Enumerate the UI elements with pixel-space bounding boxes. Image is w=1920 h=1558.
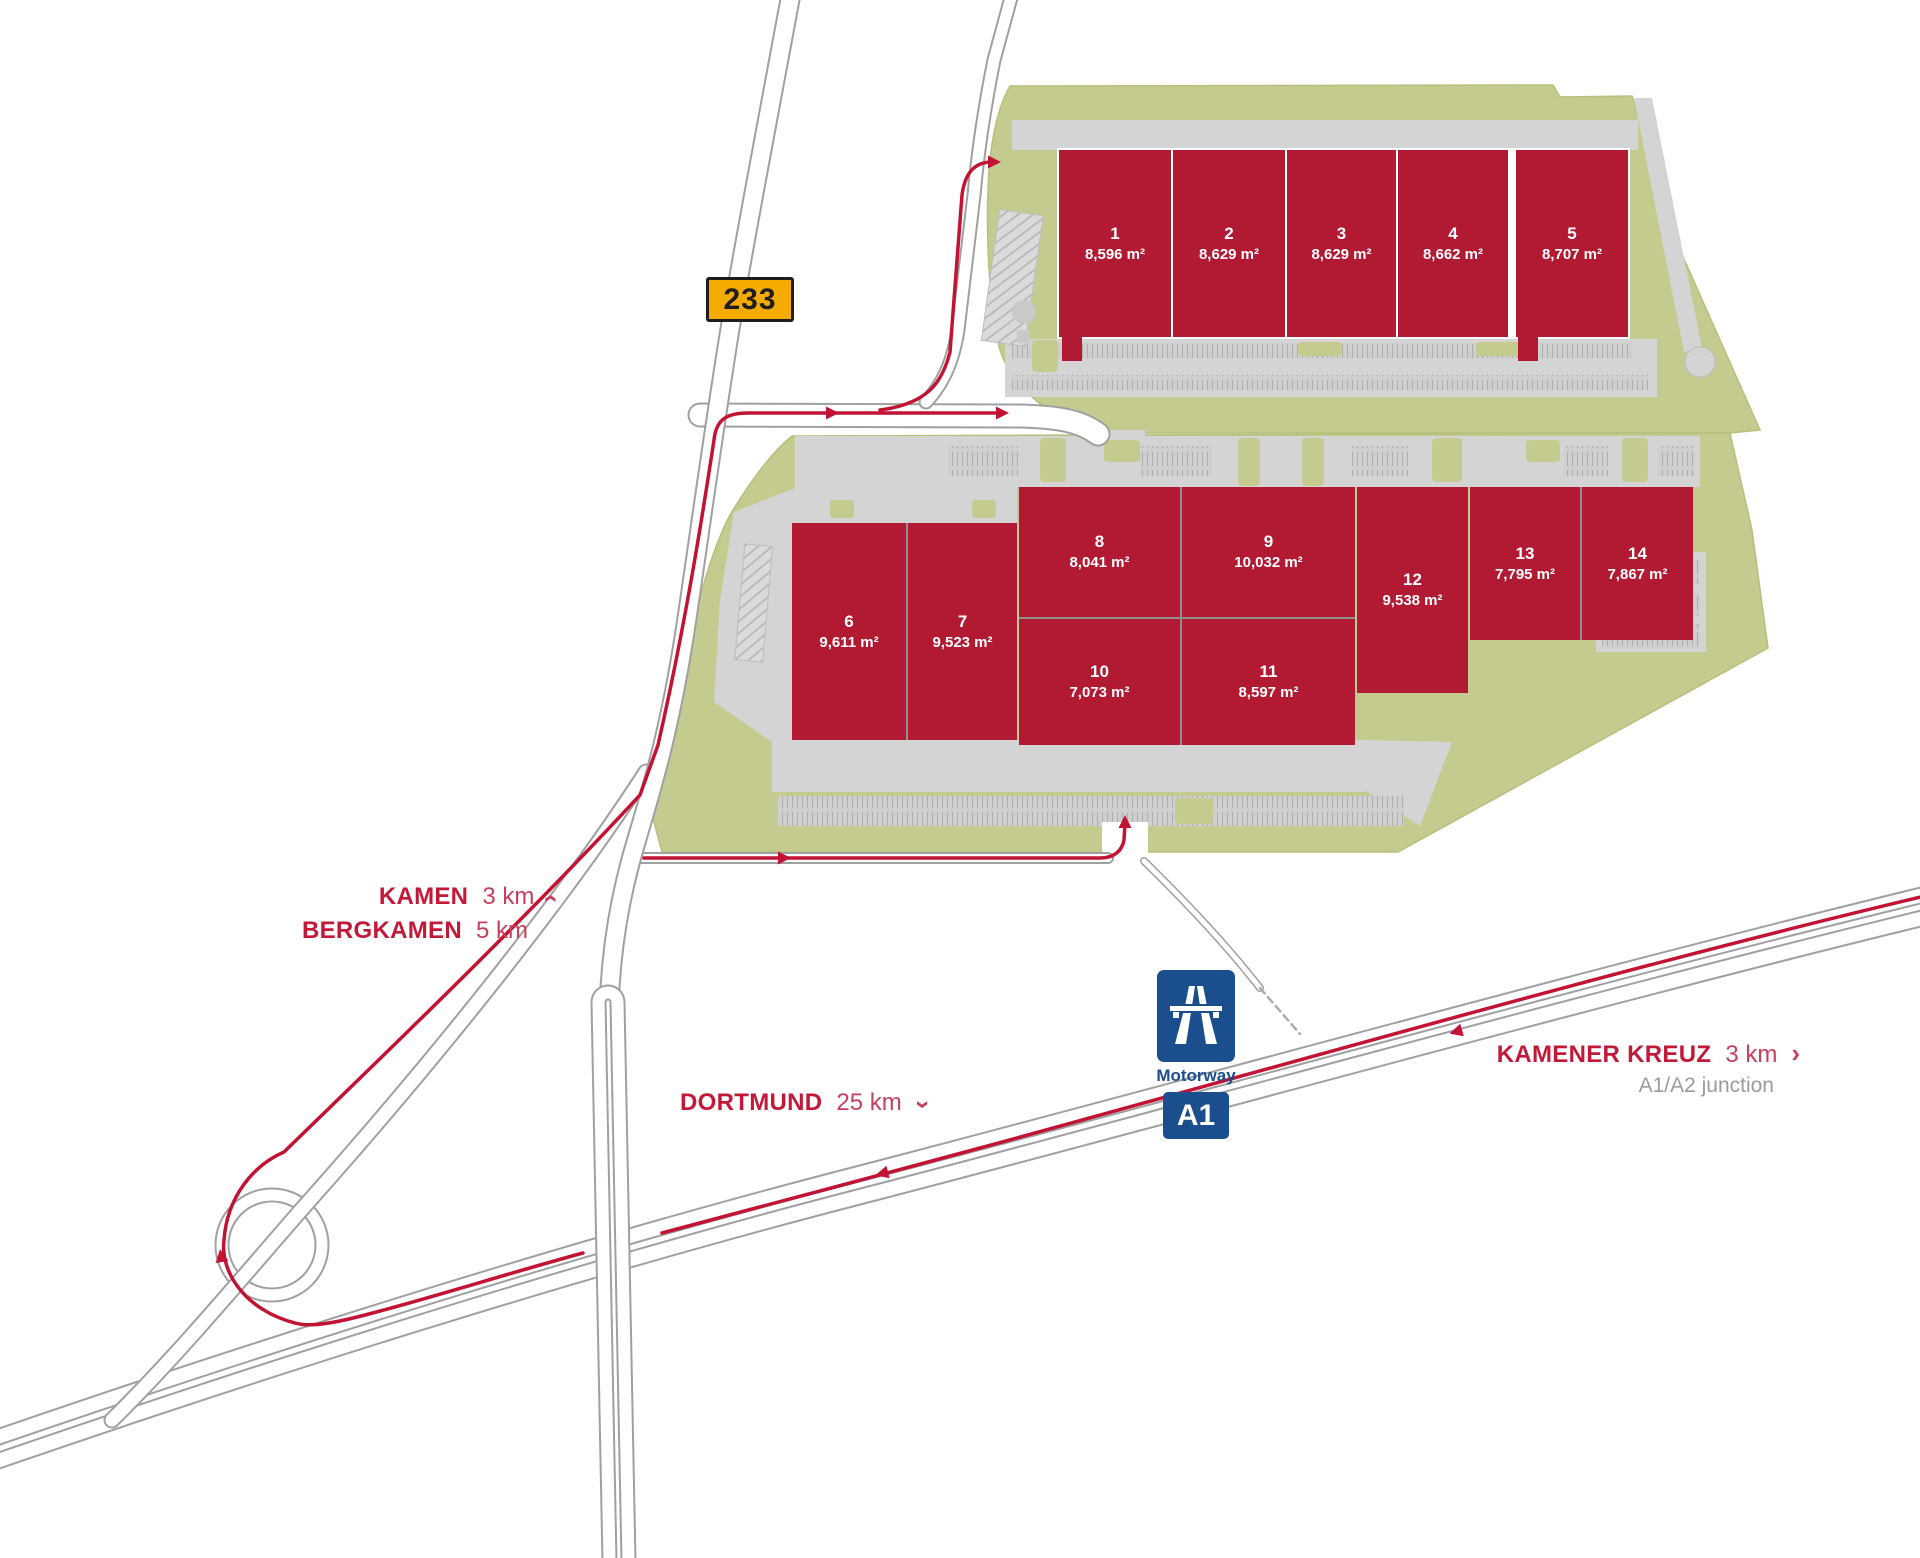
- direction-kamen: KAMEN 3 km ›: [379, 880, 557, 911]
- a1-motorway: [0, 906, 1920, 1450]
- direction-kamener-kreuz: KAMENER KREUZ 3 km › A1/A2 junction: [1497, 1038, 1800, 1098]
- building-plot-6: 6 9,611 m²: [792, 523, 906, 740]
- building-area: 10,032 m²: [1234, 553, 1302, 573]
- distance: 3 km: [482, 883, 534, 911]
- building-area: 9,611 m²: [819, 633, 878, 653]
- distance: 3 km: [1725, 1041, 1777, 1069]
- building-area: 8,041 m²: [1069, 553, 1129, 573]
- building-number: 14: [1628, 543, 1647, 565]
- building-plot-3: 3 8,629 m²: [1287, 150, 1396, 337]
- building-plot-13: 13 7,795 m²: [1470, 487, 1580, 640]
- building-area: 7,073 m²: [1069, 683, 1129, 703]
- town-name: KAMEN: [379, 883, 469, 911]
- building-number: 13: [1516, 543, 1535, 565]
- building-plot-2: 2 8,629 m²: [1173, 150, 1285, 337]
- building-number: 5: [1567, 223, 1576, 245]
- building-number: 9: [1264, 531, 1273, 553]
- site-plan-map: 1 8,596 m² 2 8,629 m² 3 8,629 m² 4 8,662…: [0, 0, 1920, 1558]
- building-plot-14: 14 7,867 m²: [1582, 487, 1693, 640]
- building-area: 8,662 m²: [1423, 245, 1483, 265]
- building-number: 4: [1448, 223, 1457, 245]
- building-area: 7,867 m²: [1607, 565, 1667, 585]
- building-number: 11: [1260, 661, 1278, 683]
- building-plot-7: 7 9,523 m²: [908, 523, 1017, 740]
- map-canvas: [0, 0, 1920, 1558]
- motorway-sign-group: Motorway A1: [1148, 970, 1244, 1139]
- building-plot-8: 8 8,041 m²: [1019, 487, 1180, 617]
- building-plot-12: 12 9,538 m²: [1357, 487, 1468, 693]
- building-number: 2: [1224, 223, 1233, 245]
- building-area: 7,795 m²: [1495, 565, 1555, 585]
- a1-road-sign: A1: [1163, 1092, 1229, 1139]
- motorway-label: Motorway: [1156, 1066, 1235, 1086]
- building-area: 8,629 m²: [1311, 245, 1371, 265]
- chevron-down-icon: ›: [908, 1100, 939, 1109]
- chevron-up-icon: ›: [534, 894, 565, 903]
- building-plot-5: 5 8,707 m²: [1516, 150, 1628, 337]
- distance: 25 km: [836, 1089, 901, 1117]
- building-number: 7: [958, 611, 967, 633]
- direction-row: KAMENER KREUZ 3 km ›: [1497, 1038, 1800, 1069]
- building-area: 8,707 m²: [1542, 245, 1602, 265]
- building-number: 6: [844, 611, 853, 633]
- a1-road-number: A1: [1177, 1099, 1215, 1133]
- motorway-icon: [1157, 970, 1235, 1062]
- building-number: 12: [1403, 569, 1422, 591]
- junction-subtitle: A1/A2 junction: [1639, 1074, 1774, 1098]
- route-233-number: 233: [723, 283, 776, 317]
- building-area: 8,629 m²: [1199, 245, 1259, 265]
- building-number: 3: [1337, 223, 1346, 245]
- building-number: 10: [1090, 661, 1109, 683]
- distance: 5 km: [476, 917, 528, 945]
- route-233-sign: 233: [706, 277, 794, 322]
- building-area: 9,538 m²: [1382, 591, 1442, 611]
- town-name: KAMENER KREUZ: [1497, 1041, 1712, 1069]
- building-plot-9: 9 10,032 m²: [1182, 487, 1355, 617]
- building-plot-1: 1 8,596 m²: [1059, 150, 1171, 337]
- town-name: DORTMUND: [680, 1089, 822, 1117]
- town-name: BERGKAMEN: [302, 917, 462, 945]
- entrance-corridor-road: [700, 415, 1098, 434]
- building-number: 8: [1095, 531, 1104, 553]
- building-plot-10: 10 7,073 m²: [1019, 619, 1180, 745]
- building-area: 8,597 m²: [1238, 683, 1298, 703]
- direction-bergkamen: BERGKAMEN 5 km: [302, 917, 528, 945]
- direction-dortmund: DORTMUND 25 km ›: [680, 1086, 924, 1117]
- building-number: 1: [1110, 223, 1119, 245]
- building-plot-11: 11 8,597 m²: [1182, 619, 1355, 745]
- chevron-right-icon: ›: [1791, 1038, 1800, 1069]
- building-area: 8,596 m²: [1085, 245, 1145, 265]
- building-area: 9,523 m²: [932, 633, 992, 653]
- building-plot-4: 4 8,662 m²: [1398, 150, 1508, 337]
